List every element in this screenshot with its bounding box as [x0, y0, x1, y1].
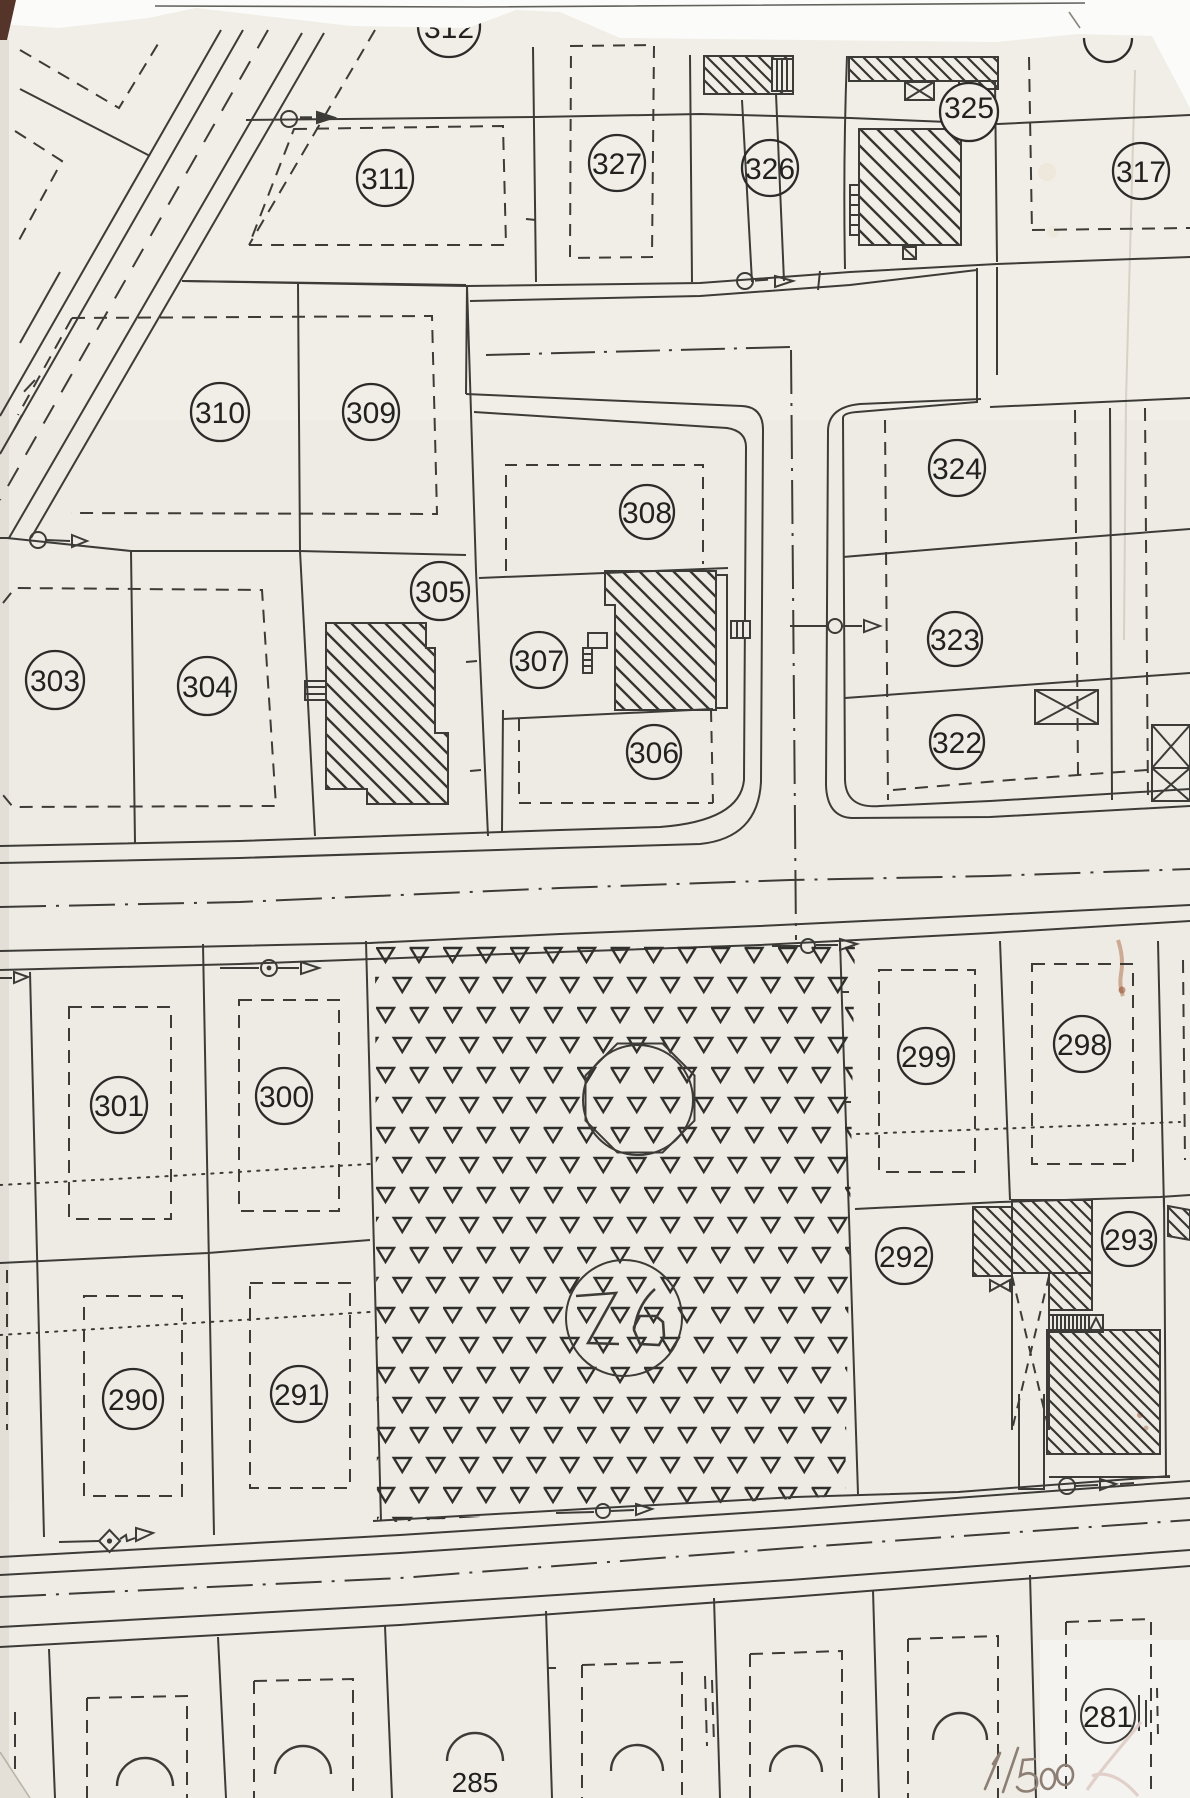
svg-text:306: 306	[629, 737, 679, 770]
svg-text:310: 310	[195, 397, 245, 430]
svg-text:299: 299	[901, 1041, 951, 1074]
svg-text:285: 285	[452, 1767, 499, 1798]
svg-text:298: 298	[1057, 1029, 1107, 1062]
svg-text:311: 311	[361, 163, 409, 196]
svg-text:291: 291	[274, 1379, 324, 1412]
svg-text:308: 308	[622, 497, 672, 530]
svg-text:301: 301	[94, 1090, 144, 1123]
svg-text:300: 300	[259, 1081, 309, 1114]
svg-text:317: 317	[1116, 156, 1166, 189]
svg-text:303: 303	[30, 665, 80, 698]
svg-text:322: 322	[932, 727, 982, 760]
svg-text:309: 309	[346, 397, 396, 430]
svg-text:327: 327	[592, 148, 642, 181]
svg-text:325: 325	[944, 92, 994, 125]
svg-text:307: 307	[514, 645, 564, 678]
svg-text:290: 290	[108, 1384, 158, 1417]
svg-text:323: 323	[930, 624, 980, 657]
svg-text:324: 324	[932, 453, 982, 486]
svg-text:305: 305	[415, 576, 465, 609]
svg-text:281: 281	[1083, 1701, 1133, 1734]
svg-text:293: 293	[1104, 1224, 1154, 1257]
svg-text:292: 292	[879, 1241, 929, 1274]
svg-text:304: 304	[182, 671, 232, 704]
svg-text:326: 326	[745, 153, 795, 186]
